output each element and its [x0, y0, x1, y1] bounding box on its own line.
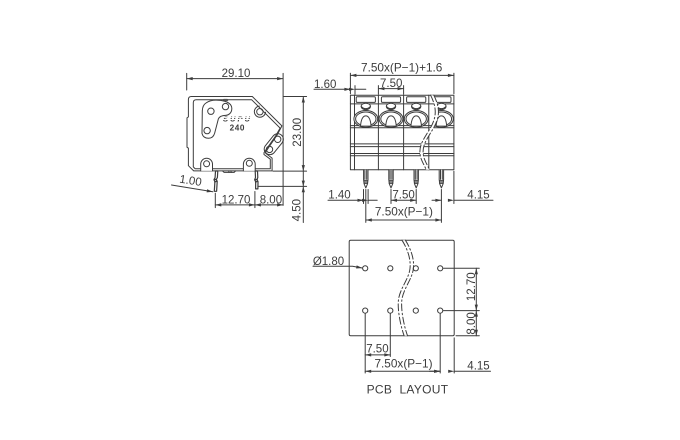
svg-text:7.50x(P−1): 7.50x(P−1) — [375, 205, 433, 219]
svg-text:7.50: 7.50 — [392, 190, 414, 202]
svg-text:8.00: 8.00 — [260, 194, 282, 206]
svg-text:7.50x(P−1): 7.50x(P−1) — [374, 356, 432, 370]
svg-text:7.50x(P−1)+1.6: 7.50x(P−1)+1.6 — [361, 60, 443, 74]
svg-text:PCB LAYOUT: PCB LAYOUT — [367, 383, 449, 397]
svg-text:29.10: 29.10 — [222, 68, 251, 80]
svg-text:1.60: 1.60 — [314, 79, 336, 91]
svg-text:12.70: 12.70 — [222, 194, 251, 206]
svg-text:4.15: 4.15 — [467, 360, 489, 372]
svg-text:SUPU: SUPU — [223, 114, 252, 123]
svg-text:8.00: 8.00 — [466, 312, 478, 334]
svg-text:1.40: 1.40 — [328, 190, 350, 202]
svg-text:7.50: 7.50 — [380, 78, 402, 90]
svg-text:12.70: 12.70 — [466, 272, 478, 301]
svg-text:240: 240 — [230, 124, 245, 133]
svg-text:23.00: 23.00 — [292, 118, 304, 147]
svg-text:Ø1.80: Ø1.80 — [313, 256, 344, 268]
svg-text:4.50: 4.50 — [291, 199, 303, 221]
svg-text:4.15: 4.15 — [467, 190, 489, 202]
svg-text:7.50: 7.50 — [366, 343, 388, 355]
